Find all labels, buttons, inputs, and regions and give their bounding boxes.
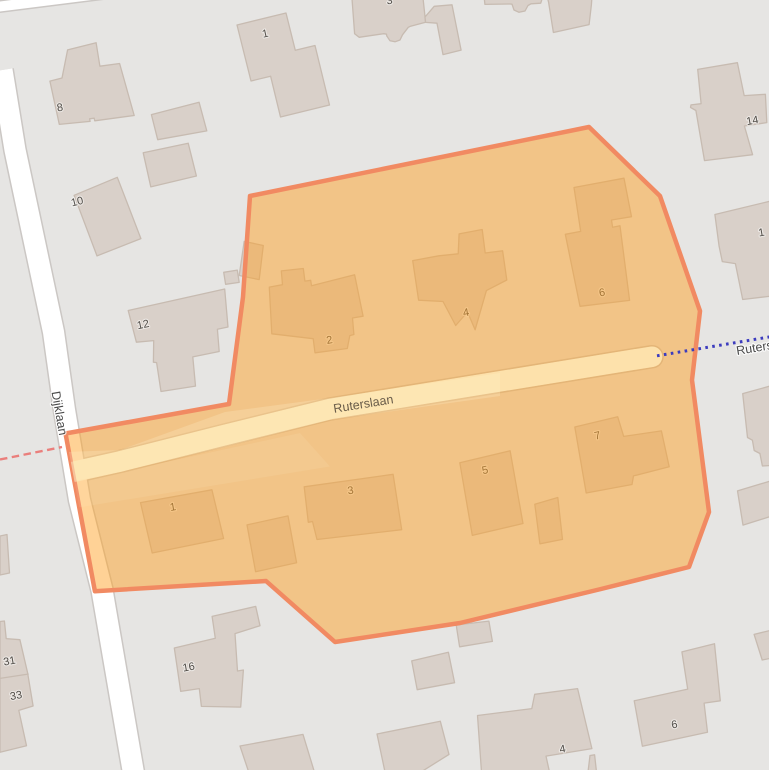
svg-text:31: 31 — [2, 655, 16, 669]
svg-text:33: 33 — [9, 689, 23, 703]
svg-text:12: 12 — [136, 318, 150, 332]
svg-text:14: 14 — [745, 114, 759, 128]
svg-text:3: 3 — [385, 0, 393, 7]
svg-text:16: 16 — [182, 661, 196, 675]
